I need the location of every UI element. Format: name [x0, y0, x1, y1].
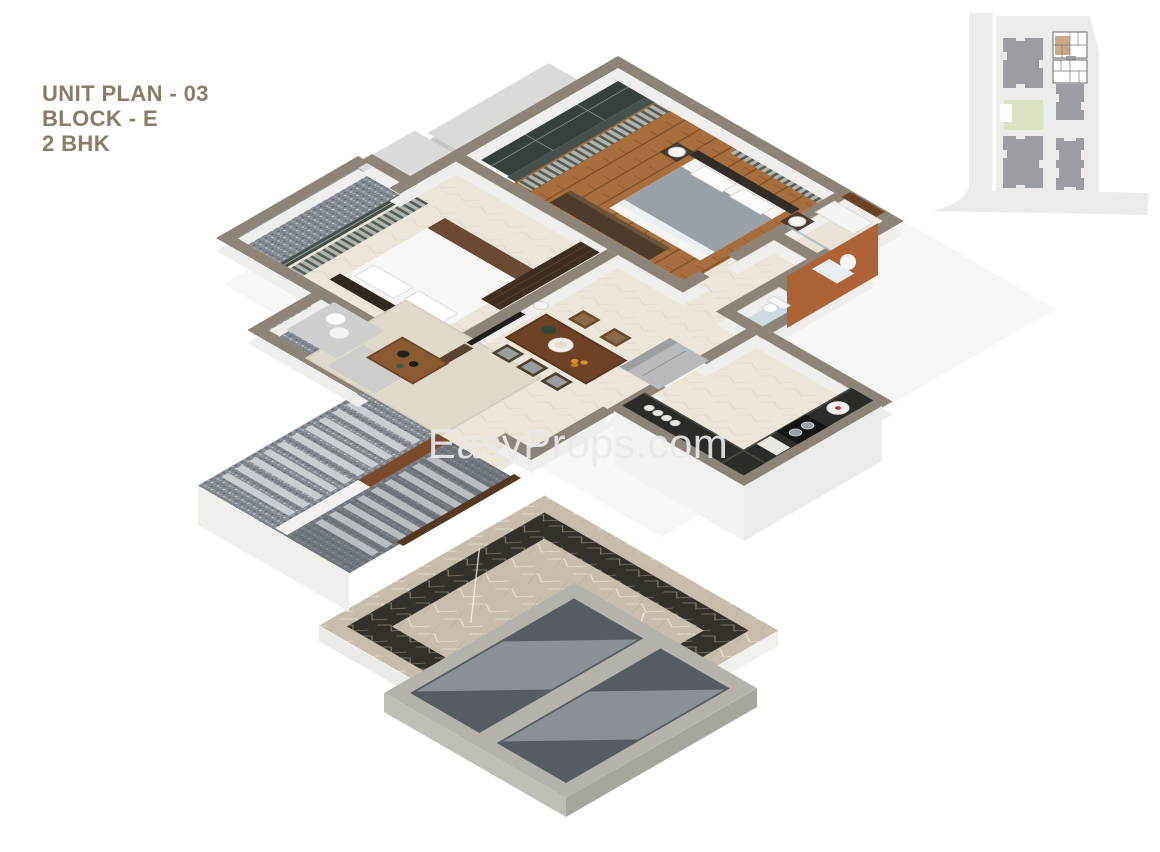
- unit-title-block: UNIT PLAN - 03 BLOCK - E 2 BHK: [42, 81, 209, 156]
- unit-type: 2 BHK: [42, 131, 209, 156]
- unit-plan-page: UNIT PLAN - 03 BLOCK - E 2 BHK EasyProps…: [0, 0, 1160, 852]
- site-map-lawn: [1000, 100, 1043, 130]
- unit-plan-number: UNIT PLAN - 03: [42, 81, 209, 106]
- watermark: EasyProps.com: [428, 420, 729, 468]
- block-name: BLOCK - E: [42, 106, 209, 131]
- site-map-unit-block-detail: [1053, 32, 1087, 83]
- site-map: [933, 13, 1149, 215]
